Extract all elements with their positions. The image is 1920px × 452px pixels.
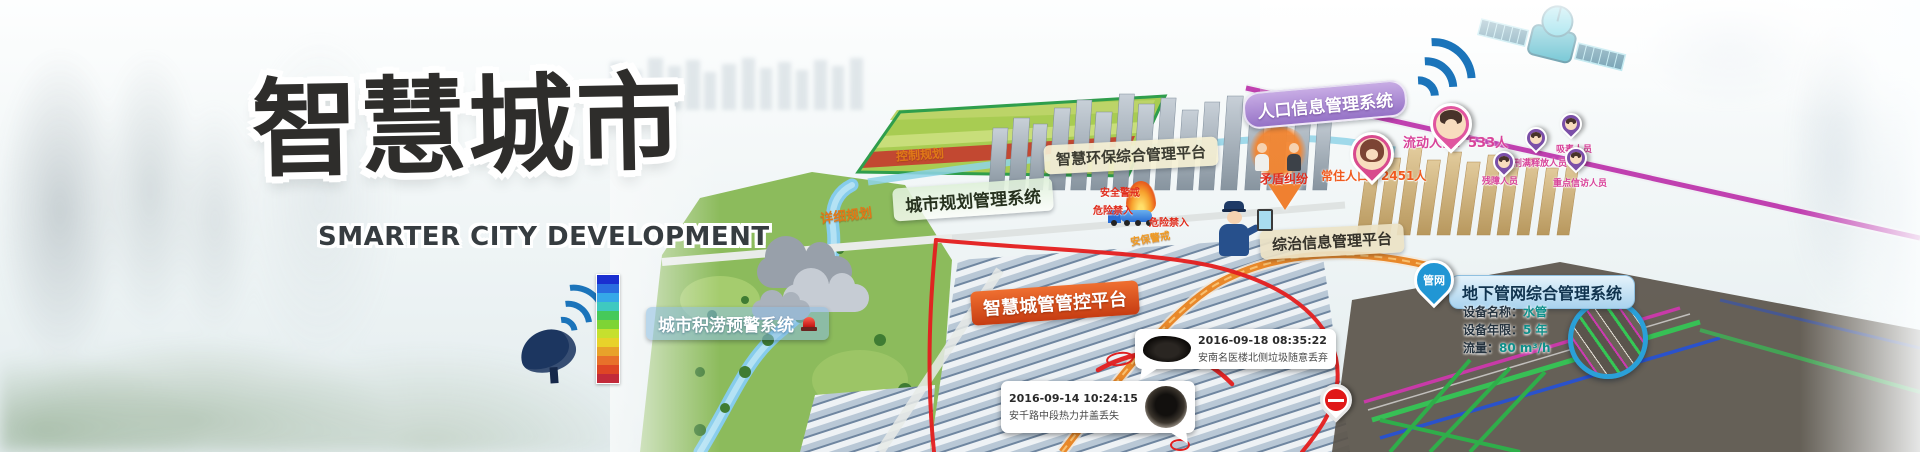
tag-disabled-persons: 残障人员 xyxy=(1482,174,1518,187)
incident-callout-garbage: 2016-09-18 08:35:22 安南名医楼北侧垃圾随意丢弃 xyxy=(1135,329,1336,369)
satellite-icon xyxy=(1476,0,1633,76)
pipe-pin-text: 管网 xyxy=(1417,263,1451,297)
manhole-photo xyxy=(1145,386,1187,428)
incident-desc: 安南名医楼北侧垃圾随意丢弃 xyxy=(1198,349,1328,364)
garbage-photo xyxy=(1143,336,1191,362)
pipe-info-panel: 设备名称：水管 设备年限：5 年 流量：80 m³/h xyxy=(1463,303,1551,357)
tag-safety-cordon: 安全警戒 xyxy=(1100,184,1140,199)
tag-petition-persons: 重点信访人员 xyxy=(1553,176,1607,189)
pipe-info-flow: 流量：80 m³/h xyxy=(1463,339,1551,357)
callout-tail xyxy=(1140,366,1158,382)
pipe-magnifier-icon xyxy=(1568,299,1648,379)
tag-danger-no-entry: 危险禁入 xyxy=(1093,202,1133,217)
incident-callout-manhole: 2016-09-14 10:24:15 安千路中段热力井盖丢失 xyxy=(1001,381,1195,433)
tag-danger-no-entry: 危险禁入 xyxy=(1149,214,1189,229)
rainfall-legend xyxy=(596,274,620,384)
smart-city-banner: 智慧城市 SMARTER CITY DEVELOPMENT 人口信息管理系统 智… xyxy=(0,0,1920,452)
callout-tail xyxy=(1170,430,1188,446)
tag-released-persons: 刑满释放人员 xyxy=(1513,156,1567,169)
incident-time: 2016-09-14 10:24:15 xyxy=(1009,392,1138,405)
alarm-siren-icon xyxy=(801,317,817,331)
policeman-icon xyxy=(1214,201,1270,261)
banner-title: 智慧城市 xyxy=(251,70,685,184)
dispute-people-icon xyxy=(1247,126,1309,176)
tag-control-plan: 控制规划 xyxy=(895,144,944,164)
label-flood-warning-system: 城市积涝预警系统 xyxy=(646,307,829,340)
warning-triangle-icon xyxy=(1268,184,1302,210)
incident-time: 2016-09-18 08:35:22 xyxy=(1198,334,1328,347)
banner-subtitle: SMARTER CITY DEVELOPMENT xyxy=(318,222,770,252)
incident-desc: 安千路中段热力井盖丢失 xyxy=(1009,407,1138,422)
flood-label-text: 城市积涝预警系统 xyxy=(658,311,794,336)
pipe-info-age: 设备年限：5 年 xyxy=(1463,321,1551,339)
pipe-info-name: 设备名称：水管 xyxy=(1463,303,1551,321)
tag-dispute: 矛盾纠纷 xyxy=(1260,170,1308,187)
